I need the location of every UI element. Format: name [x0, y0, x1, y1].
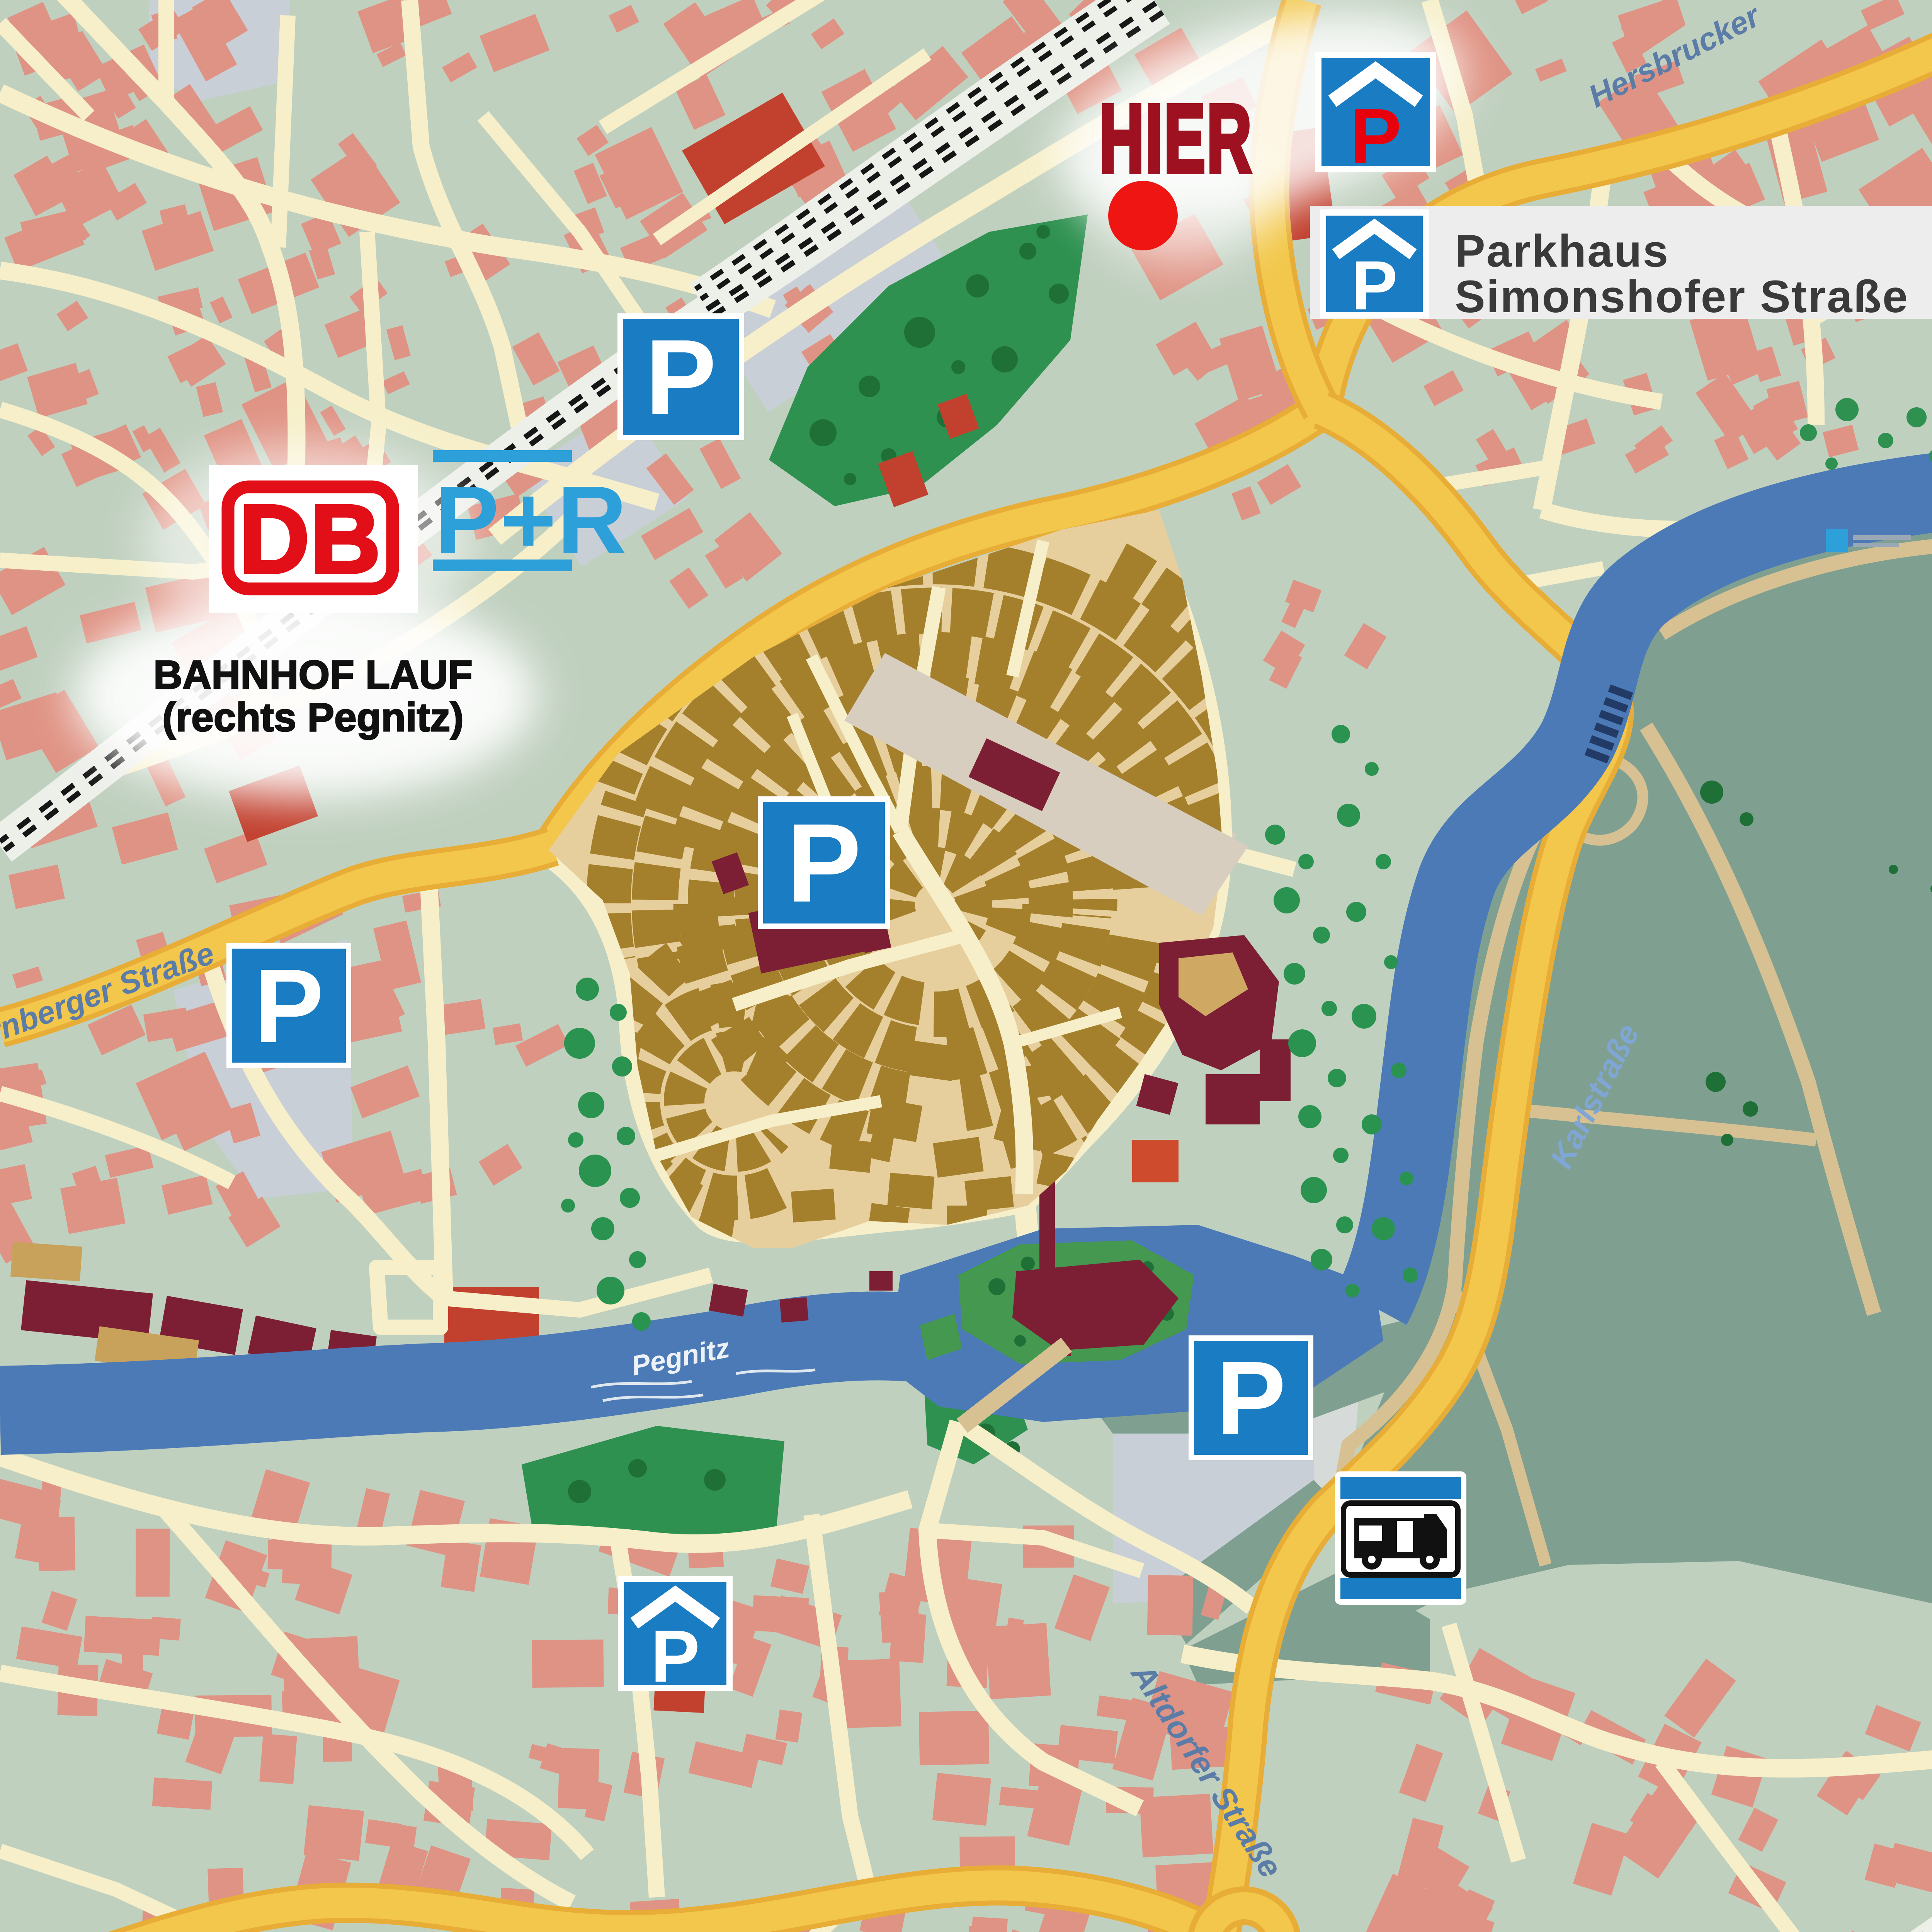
- svg-text:P: P: [651, 1615, 700, 1697]
- svg-text:DB: DB: [239, 485, 381, 594]
- svg-text:Simonshofer Straße: Simonshofer Straße: [1455, 271, 1909, 322]
- svg-text:BAHNHOF LAUF: BAHNHOF LAUF: [153, 653, 473, 697]
- svg-text:Parkhaus: Parkhaus: [1455, 226, 1669, 277]
- svg-text:P: P: [1350, 92, 1401, 180]
- svg-text:P: P: [1351, 247, 1398, 325]
- svg-text:P: P: [1216, 1339, 1286, 1457]
- svg-text:(rechts Pegnitz): (rechts Pegnitz): [162, 695, 464, 740]
- svg-text:HIER: HIER: [1099, 85, 1253, 193]
- svg-text:P: P: [787, 801, 861, 925]
- svg-text:P: P: [254, 947, 324, 1065]
- svg-text:P+R: P+R: [435, 466, 628, 574]
- svg-text:P: P: [645, 318, 716, 437]
